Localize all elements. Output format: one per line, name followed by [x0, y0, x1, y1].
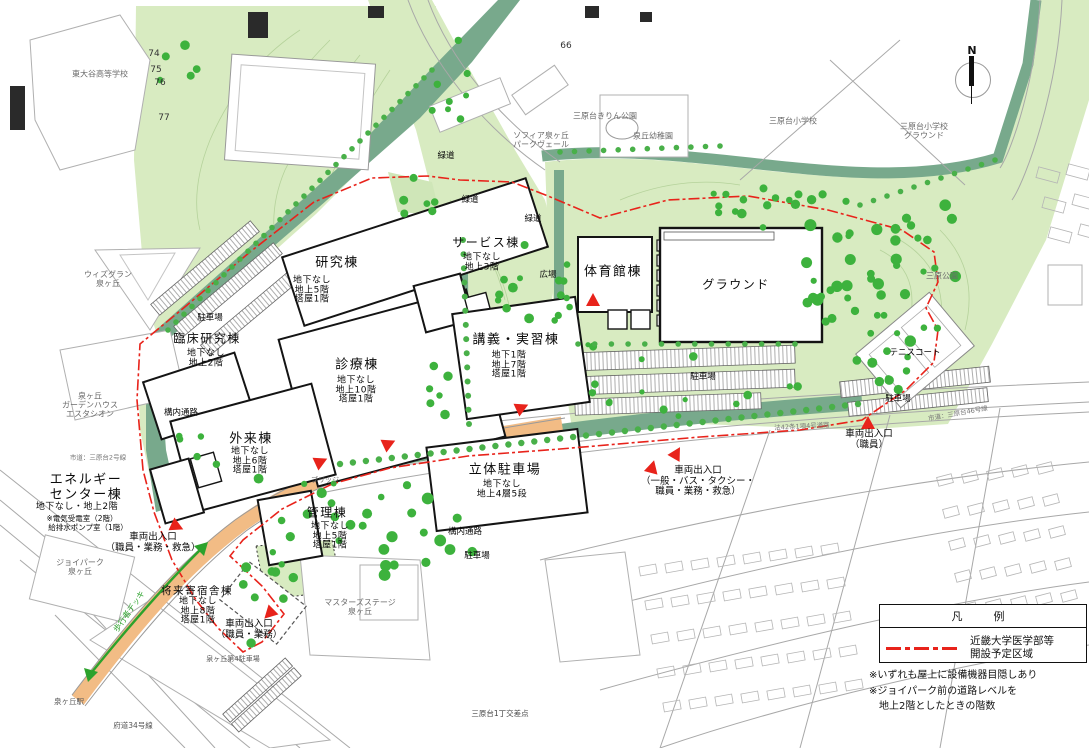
site-plan-canvas: 研究棟地下なし 地上5階 塔屋1階臨床研究棟地下なし 地上2階診療棟地下なし 地… [0, 0, 1089, 748]
ground-footprint [660, 228, 822, 342]
footnote: ※いずれも屋上に設備機器目隠しあり [869, 668, 1089, 684]
administration-building-footprint [258, 491, 323, 565]
legend-title: 凡 例 [880, 605, 1086, 624]
footnote: ※ジョイパーク前の道路レベルを [869, 684, 1089, 700]
legend-item: 近畿大学医学部等 開設予定区域 [970, 635, 1054, 661]
legend: 凡 例 近畿大学医学部等 開設予定区域 [879, 604, 1087, 663]
lecture-training-building-footprint [452, 297, 590, 419]
boundary-line-sample-icon [886, 647, 960, 650]
footnote: 地上2階としたときの階数 [869, 699, 1089, 715]
north-arrow: N [946, 44, 998, 114]
footnotes: ※いずれも屋上に設備機器目隠しあり ※ジョイパーク前の道路レベルを 地上2階とし… [869, 668, 1089, 715]
